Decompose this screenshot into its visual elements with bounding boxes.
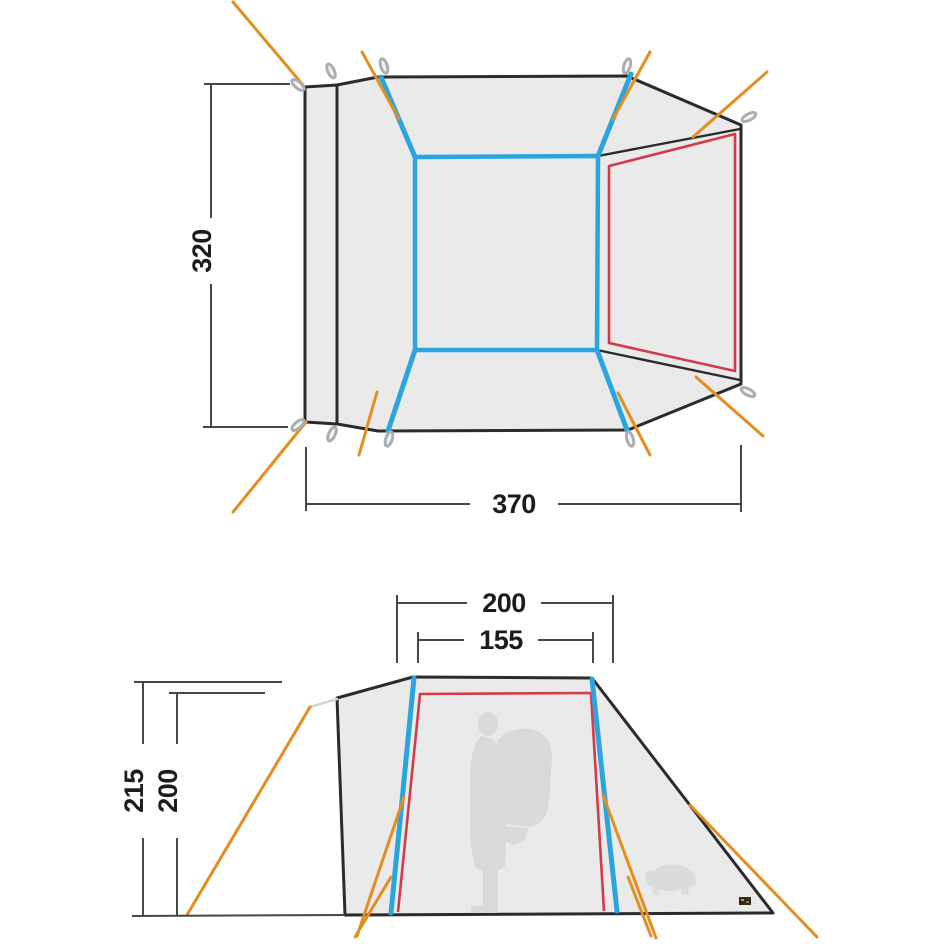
guy-line-attachment xyxy=(310,699,337,707)
dimension-width-label: 370 xyxy=(492,489,536,519)
dimension-base-width-label: 200 xyxy=(482,588,526,618)
diagram-canvas: 320 370 xyxy=(0,0,944,944)
dimension-outer-height: 215 xyxy=(119,682,282,916)
tent-peg-icon xyxy=(290,78,306,93)
tent-peg-icon xyxy=(290,418,306,433)
floor-plan-view: 320 370 xyxy=(187,2,767,519)
tent-peg-icon xyxy=(741,111,757,124)
tent-peg-icon xyxy=(625,431,635,447)
tent-peg-icon xyxy=(379,58,390,74)
dimension-top-width-label: 155 xyxy=(479,625,523,655)
tent-peg-icon xyxy=(740,386,756,399)
tent-dimension-diagram: 320 370 xyxy=(0,0,944,944)
floor-plan-tent-outline xyxy=(305,76,741,431)
guy-line xyxy=(233,2,303,85)
tent-peg-icon xyxy=(326,426,338,442)
tent-peg-icon xyxy=(325,63,337,79)
dimension-outer-height-label: 215 xyxy=(119,769,149,813)
dimension-depth-label: 320 xyxy=(187,229,217,273)
dimension-depth: 320 xyxy=(187,84,290,427)
tent-peg-icon xyxy=(384,431,395,447)
dimension-inner-height: 200 xyxy=(153,693,265,916)
dimension-inner-height-label: 200 xyxy=(153,769,183,813)
dimension-width: 370 xyxy=(306,445,741,519)
ground-line xyxy=(132,915,345,916)
guy-line xyxy=(187,707,310,915)
brand-label-icon xyxy=(739,897,751,905)
elevation-view: 215 200 200 155 xyxy=(119,588,817,938)
guy-line xyxy=(233,422,306,512)
dimension-top-width: 155 xyxy=(418,625,593,663)
